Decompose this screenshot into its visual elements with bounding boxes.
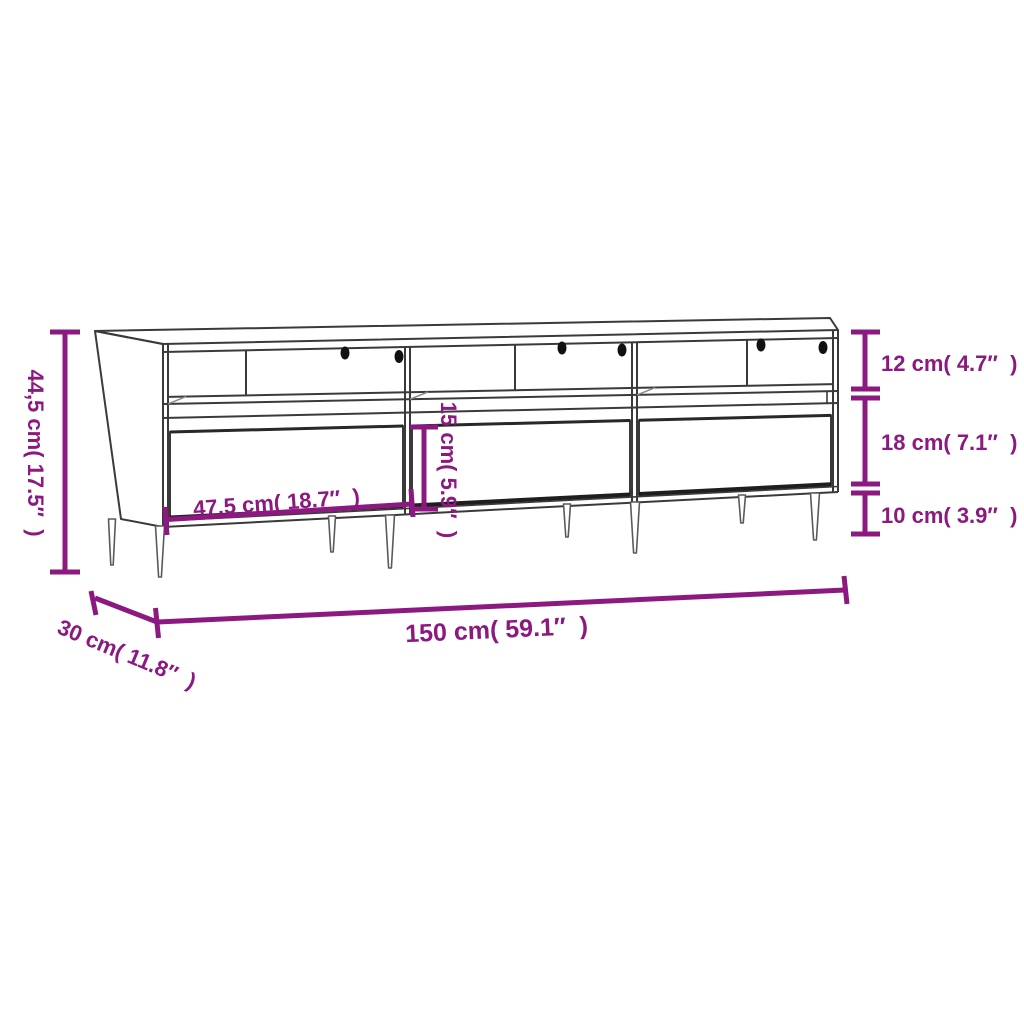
dim-label-leg-height: 10 cm( 3.9″ ) (881, 503, 1018, 528)
dim-leg-height (851, 493, 880, 534)
dim-label-drawer-front-height: 15 cm( 5.9″ ) (436, 402, 461, 539)
back-leg-4 (739, 495, 746, 523)
dimension-diagram-svg: 44,5 cm( 17.5″ ) 12 cm( 4.7″ ) 18 cm( 7.… (0, 0, 1024, 1024)
dim-label-overall-width: 150 cm( 59.1″ ) (405, 612, 589, 649)
back-leg-2 (329, 516, 336, 552)
dimension-annotations (50, 332, 880, 638)
cabinet-top-fascia (163, 338, 838, 352)
cable-hole-6 (819, 341, 828, 354)
cable-hole-4 (618, 344, 627, 357)
front-leg-3 (631, 502, 640, 553)
cable-hole-1 (341, 347, 350, 360)
back-leg-3 (564, 504, 571, 537)
cable-hole-3 (558, 342, 567, 355)
dim-label-overall-depth: 30 cm( 11.8″ ) (54, 614, 200, 694)
front-leg-1 (156, 526, 165, 577)
rail-line (163, 403, 838, 418)
dim-label-overall-height: 44,5 cm( 17.5″ ) (23, 369, 48, 536)
front-leg-4 (811, 493, 820, 540)
cable-hole-2 (395, 350, 404, 363)
shelf-back-edge (168, 384, 833, 397)
dim-drawer-section-height (851, 398, 880, 484)
dim-overall-height (50, 332, 80, 572)
dim-label-drawer-section-height: 18 cm( 7.1″ ) (881, 430, 1018, 455)
drawer-gap-3 (639, 415, 831, 420)
left-side-panel (95, 331, 163, 527)
cabinet-line-art (95, 318, 838, 577)
drawer-front-3 (639, 415, 831, 495)
diagram-canvas: 44,5 cm( 17.5″ ) 12 cm( 4.7″ ) 18 cm( 7.… (0, 0, 1024, 1024)
drawer-gap-1 (170, 426, 403, 432)
dim-shelf-section-height (851, 332, 880, 389)
back-leg-1 (109, 519, 116, 565)
dim-label-shelf-section-height: 12 cm( 4.7″ ) (881, 351, 1018, 376)
cable-hole-5 (757, 339, 766, 352)
shelf-front-edge (163, 391, 838, 404)
dim-overall-depth (91, 591, 157, 622)
front-leg-2 (386, 515, 395, 568)
dim-drawer-front-height (410, 427, 438, 509)
